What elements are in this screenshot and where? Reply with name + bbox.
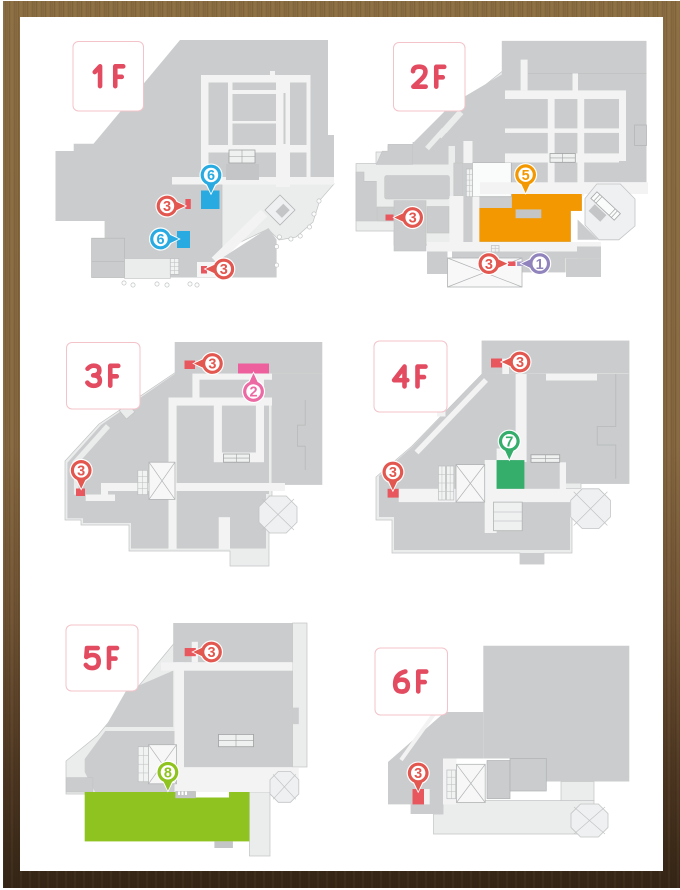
svg-text:3: 3: [414, 766, 422, 782]
svg-text:3: 3: [220, 262, 228, 278]
svg-text:3: 3: [77, 464, 85, 480]
svg-text:5: 5: [522, 168, 530, 184]
svg-text:3: 3: [163, 199, 171, 215]
svg-text:8: 8: [164, 766, 172, 782]
svg-text:3: 3: [389, 465, 397, 481]
svg-text:2: 2: [249, 385, 257, 401]
svg-text:3: 3: [409, 211, 417, 227]
svg-text:7: 7: [505, 434, 513, 450]
svg-text:3: 3: [516, 355, 524, 371]
svg-text:3: 3: [207, 645, 215, 661]
svg-text:1: 1: [536, 257, 544, 273]
svg-text:6: 6: [207, 168, 215, 184]
svg-text:3: 3: [208, 357, 216, 373]
svg-text:6: 6: [156, 232, 164, 248]
svg-text:3: 3: [485, 257, 493, 273]
